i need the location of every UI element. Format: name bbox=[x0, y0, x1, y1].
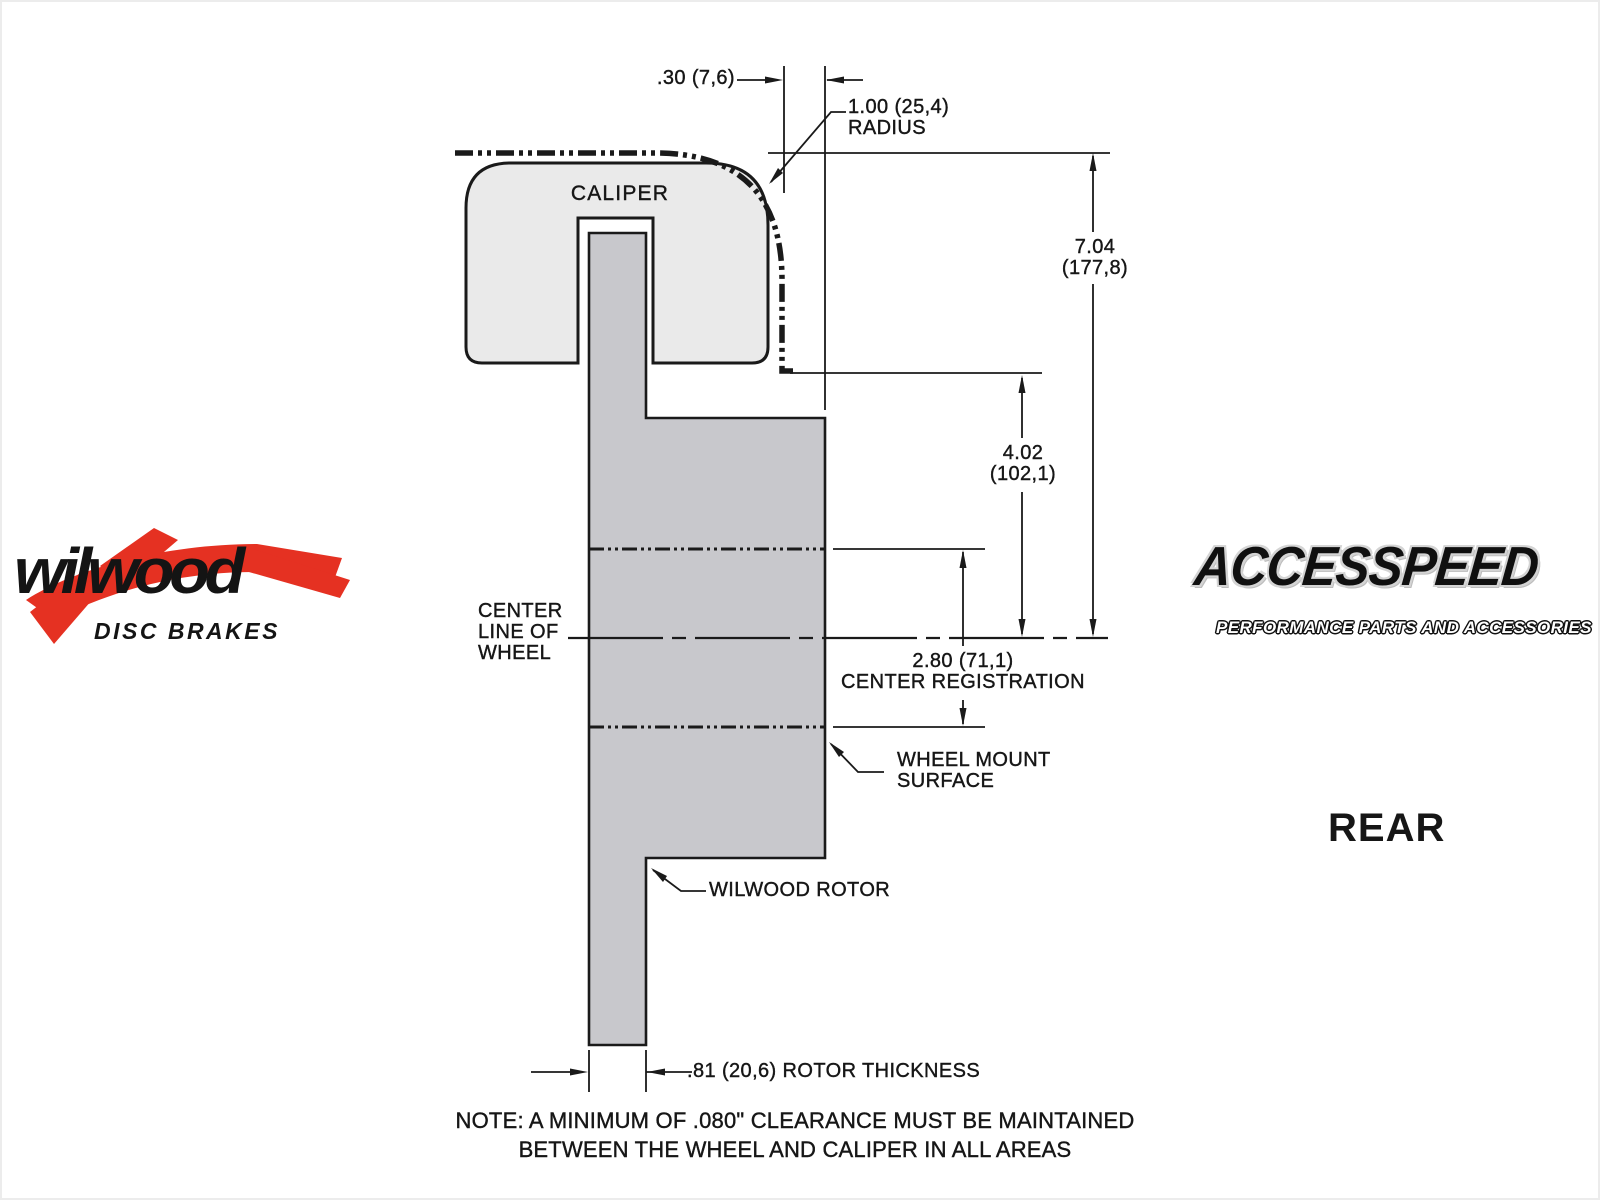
wilwood-logo: wilwood DISC BRAKES bbox=[12, 528, 327, 658]
dim-registration: 2.80 (71,1) CENTER REGISTRATION bbox=[828, 651, 1098, 693]
wilwood-tagline: DISC BRAKES bbox=[94, 618, 280, 645]
wheel-mount-label: WHEEL MOUNT SURFACE bbox=[897, 750, 1051, 792]
dim-offset: .30 (7,6) bbox=[615, 68, 735, 89]
centerline-label: CENTER LINE OF WHEEL bbox=[478, 601, 563, 664]
wheel-mount-leader bbox=[831, 744, 884, 772]
rotor-label: WILWOOD ROTOR bbox=[709, 880, 890, 901]
accesspeed-logo: ACCESSPEED PERFORMANCE PARTS AND ACCESSO… bbox=[1198, 534, 1568, 654]
wilwood-wordmark: wilwood bbox=[14, 534, 240, 608]
accesspeed-tagline: PERFORMANCE PARTS AND ACCESSORIES bbox=[1216, 618, 1592, 638]
caliper-label: CALIPER bbox=[555, 183, 685, 204]
accesspeed-wordmark: ACCESSPEED bbox=[1192, 534, 1541, 598]
dim-overall: 7.04 (177,8) bbox=[1035, 237, 1155, 279]
clearance-note: NOTE: A MINIMUM OF .080" CLEARANCE MUST … bbox=[400, 1106, 1190, 1164]
radius-leader bbox=[771, 112, 846, 182]
dim-thickness: .81 (20,6) ROTOR THICKNESS bbox=[687, 1061, 980, 1082]
view-label-rear: REAR bbox=[1328, 818, 1445, 839]
brake-dimension-diagram: CALIPER .30 (7,6) 1.00 (25,4) RADIUS 7.0… bbox=[0, 0, 1600, 1200]
dim-radius: 1.00 (25,4) RADIUS bbox=[848, 97, 949, 139]
dim-center-height: 4.02 (102,1) bbox=[963, 443, 1083, 485]
